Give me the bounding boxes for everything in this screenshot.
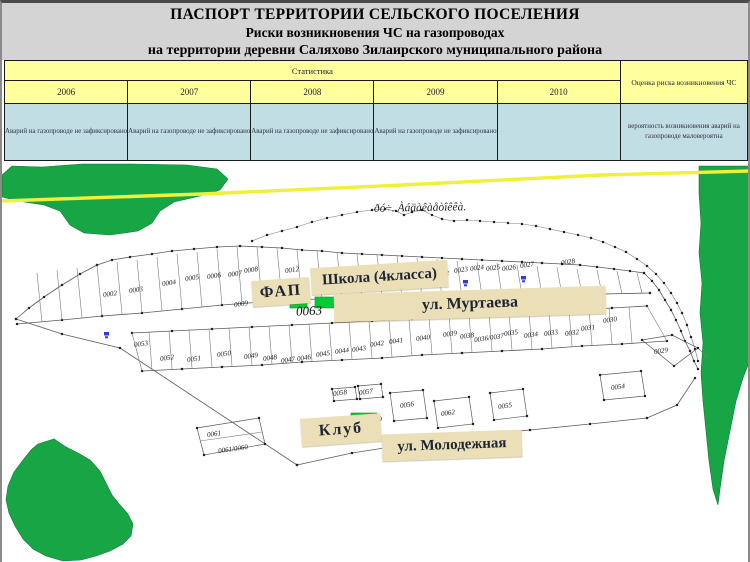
parcel-number: 0052 (160, 353, 175, 363)
parcel-number: 0049 (244, 351, 259, 361)
molodezhnaya-street-label: ул. Молодежная (382, 430, 523, 462)
cadastral-block-number: 0063 (296, 302, 323, 319)
title-line-1: ПАСПОРТ ТЕРРИТОРИИ СЕЛЬСКОГО ПОСЕЛЕНИЯ (2, 5, 748, 24)
parcel-number: 0039 (443, 329, 458, 339)
parcel-number: 0031 (581, 323, 596, 333)
parcel-number: 0024 (470, 263, 485, 273)
school-label: Школа (4класса) (310, 260, 448, 295)
vegetation-area-top-left (2, 164, 228, 235)
gas-facility-icon (104, 332, 109, 338)
year-cell: 2006 (5, 81, 128, 104)
parcel-number: 0047 (281, 355, 296, 365)
parcel-number: 0012 (285, 265, 300, 275)
incident-cell: Аварий на газопроводе не зафиксировано (5, 104, 128, 161)
parcel-number: 0027 (520, 260, 535, 270)
parcel-number: 0009 (234, 299, 249, 309)
parcel-number: 0045 (316, 349, 331, 359)
incident-cell: Аварий на газопроводе не зафиксировано (374, 104, 497, 161)
parcel-number: 0003 (129, 285, 144, 295)
parcel-number: 0058 (333, 388, 348, 398)
parcel-number: 0044 (335, 346, 350, 356)
parcel-number: 0062 (441, 408, 456, 418)
parcel-number: 0007 (228, 269, 243, 279)
parcel-number: 0035 (504, 328, 519, 338)
parcel-number: 0028 (561, 257, 576, 267)
title-block: ПАСПОРТ ТЕРРИТОРИИ СЕЛЬСКОГО ПОСЕЛЕНИЯ Р… (2, 3, 748, 60)
parcel-number: 0029 (654, 346, 669, 356)
parcel-number: 0004 (162, 278, 177, 288)
risk-value-cell: вероятность возникновения аварий на газо… (620, 104, 747, 161)
gas-facility-icon (521, 276, 526, 282)
parcel-number: 0023 (454, 265, 469, 275)
vegetation-area-right (699, 166, 750, 505)
stream-label: ðó÷. Àáäàêàåòîêêà. (374, 201, 466, 215)
parcel-number: 0055 (498, 401, 513, 411)
parcel-number: 0036/0037 (474, 332, 505, 344)
parcel-number: 0051 (187, 354, 202, 364)
year-cell: 2007 (128, 81, 251, 104)
parcel-number: 0043 (352, 344, 367, 354)
parcel-number: 0034 (524, 330, 539, 340)
parcel-number: 0053 (134, 339, 149, 349)
year-cell: 2008 (251, 81, 374, 104)
parcel-number: 0061 (207, 429, 222, 439)
klub-label: Клуб (300, 413, 382, 447)
parcel-number: 0030 (603, 315, 618, 325)
year-cell: 2010 (497, 81, 620, 104)
parcel-number: 0041 (389, 336, 404, 346)
parcel-number: 0048 (263, 353, 278, 363)
parcel-number: 0040 (416, 333, 431, 343)
parcel-number: 0046 (297, 353, 312, 363)
incident-cell (497, 104, 620, 161)
incident-cell: Аварий на газопроводе не зафиксировано (251, 104, 374, 161)
parcel-number: 0006 (207, 271, 222, 281)
statistics-table: Статистика Оценка риска возникновения ЧС… (4, 60, 748, 161)
parcel-number: 0050 (217, 349, 232, 359)
territory-passport-slide: ПАСПОРТ ТЕРРИТОРИИ СЕЛЬСКОГО ПОСЕЛЕНИЯ Р… (0, 0, 750, 562)
incident-cell: Аварий на газопроводе не зафиксировано (128, 104, 251, 161)
parcel-number: 0054 (611, 382, 626, 392)
title-line-3: на территории деревни Саляхово Зилаирско… (2, 41, 748, 60)
stats-header-cell: Статистика (5, 61, 621, 81)
parcel-number: 0033 (544, 328, 559, 338)
parcel-number: 0005 (185, 273, 200, 283)
fap-label: ФАП (251, 277, 311, 307)
parcel-number: 0008 (244, 265, 259, 275)
parcel-number: 0042 (370, 339, 385, 349)
title-line-2: Риски возникновения ЧС на газопроводах (2, 24, 748, 41)
parcel-number: 0002 (103, 289, 118, 299)
parcel-number: 0025 (486, 263, 501, 273)
parcel-number: 0061/0060 (218, 443, 249, 455)
vegetation-area-bottom-left (6, 439, 133, 561)
parcel-number: 0057 (359, 387, 374, 397)
boundary-line-yellow (2, 171, 750, 201)
parcel-number: 0056 (400, 400, 415, 410)
gas-facility-icon (463, 280, 468, 286)
year-cell: 2009 (374, 81, 497, 104)
risk-header-cell: Оценка риска возникновения ЧС (620, 61, 747, 104)
parcel-number: 0026 (502, 263, 517, 273)
parcel-number: 0032 (565, 328, 580, 338)
parcel-number: 0038 (460, 331, 475, 341)
